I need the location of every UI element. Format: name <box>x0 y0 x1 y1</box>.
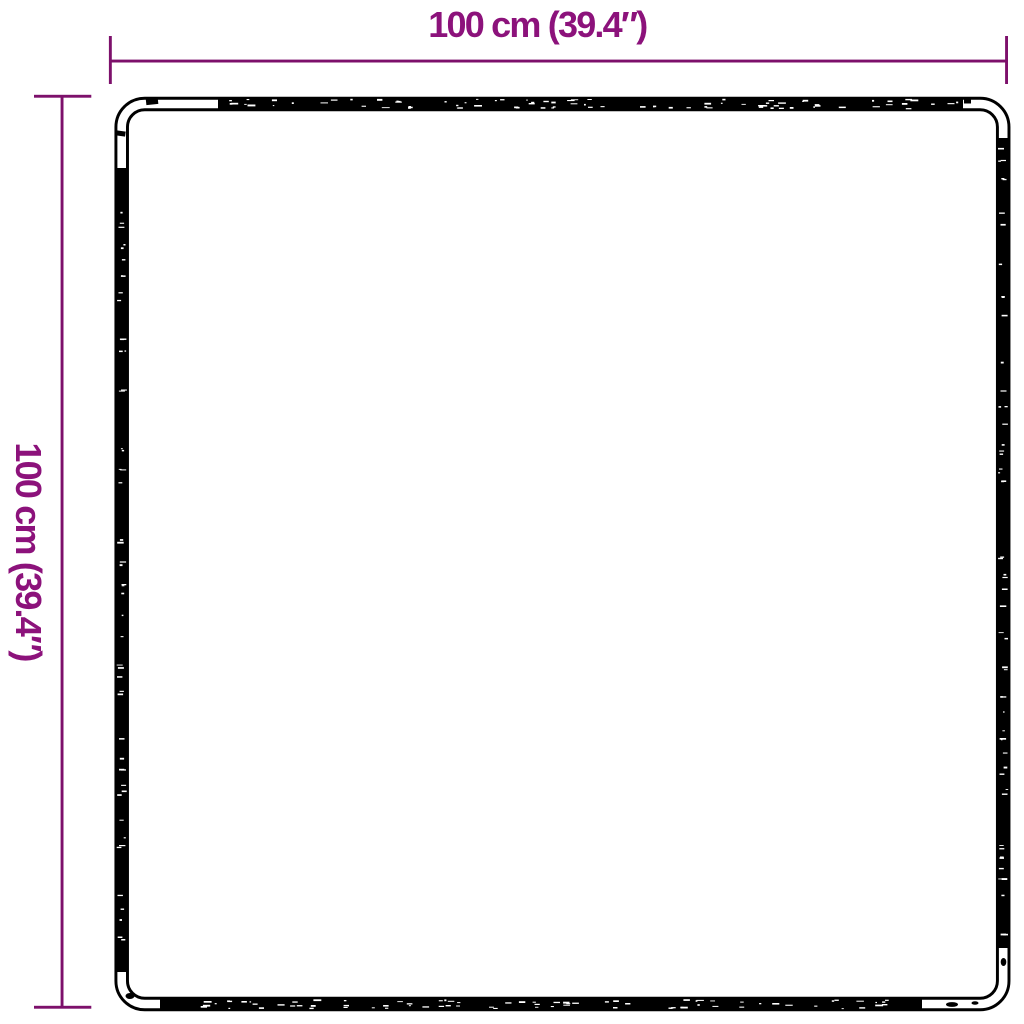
svg-text:100 cm (39.4″): 100 cm (39.4″) <box>428 4 647 45</box>
svg-text:100 cm (39.4″): 100 cm (39.4″) <box>8 442 49 661</box>
